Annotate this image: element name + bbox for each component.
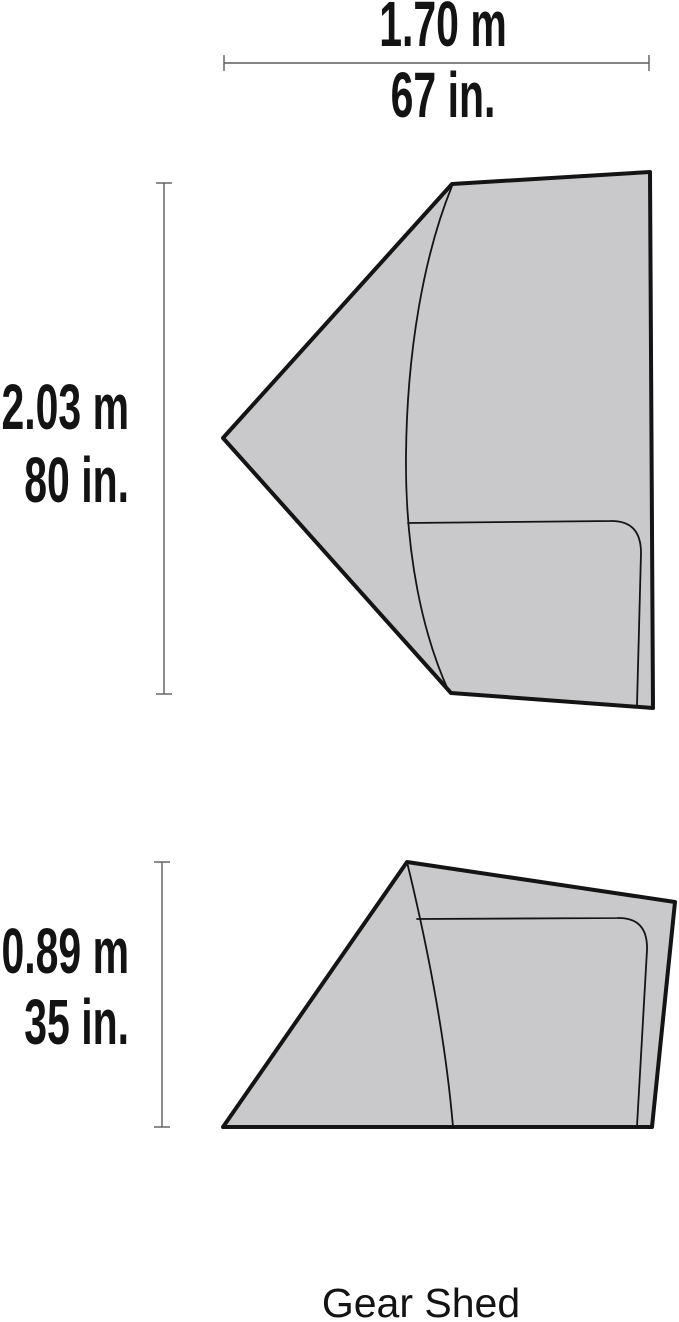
diagram-caption: Gear Shed <box>241 1279 601 1322</box>
length-metric-text: 2.03 m <box>0 371 129 444</box>
gear-shed-diagram: 1.70 m 67 in. 2.03 m 80 in. 0.89 m 35 in… <box>0 0 679 1322</box>
tent-side-view <box>223 862 675 1127</box>
length-imperial-text: 80 in. <box>0 444 129 517</box>
height-metric-text: 0.89 m <box>0 916 129 987</box>
length-dimension-line <box>156 183 172 694</box>
width-imperial-text: 67 in. <box>328 60 558 131</box>
height-dimension-line <box>154 862 170 1127</box>
width-metric-text: 1.70 m <box>328 0 558 60</box>
tent-top-view <box>223 172 653 708</box>
diagram-graphics <box>0 0 679 1322</box>
top-view-outline <box>223 172 653 708</box>
length-label: 2.03 m 80 in. <box>0 371 129 517</box>
height-label: 0.89 m 35 in. <box>0 916 129 1058</box>
width-label: 1.70 m 67 in. <box>328 0 558 131</box>
height-imperial-text: 35 in. <box>0 987 129 1058</box>
